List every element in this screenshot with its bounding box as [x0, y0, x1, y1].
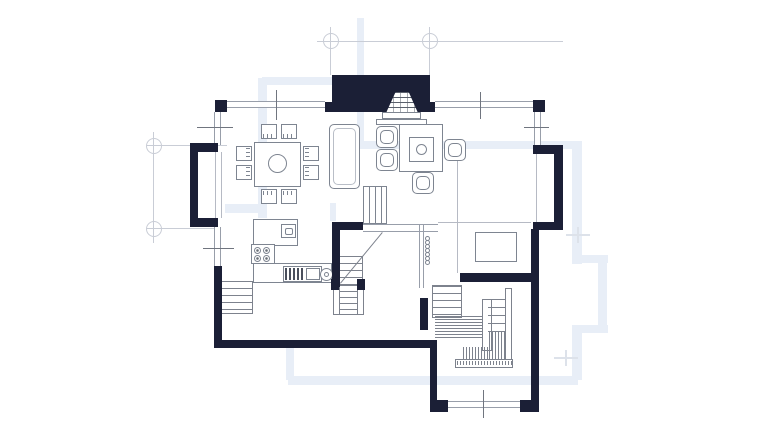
dining-chair [236, 165, 252, 180]
wall [190, 218, 218, 227]
grid-marker-icon [323, 33, 339, 49]
dining-chair [281, 124, 297, 139]
window-tick [483, 390, 484, 418]
wall [554, 145, 563, 230]
wall [190, 143, 198, 227]
armchair [444, 139, 466, 161]
survey-cross-icon [577, 227, 579, 243]
oven-door [306, 268, 320, 280]
upper-floor-outline [225, 204, 264, 213]
staircase-flight [488, 299, 505, 332]
stair-guard-line [419, 225, 420, 288]
window-tick [197, 127, 233, 128]
hall-partition-line [363, 224, 438, 225]
kitchen-appliance [281, 224, 296, 238]
grid-marker-icon [422, 33, 438, 49]
burner-icon [254, 247, 261, 254]
oven-grill [285, 268, 304, 280]
coffee-table-bowl [416, 144, 427, 155]
armchair [376, 149, 398, 171]
partition-line [457, 146, 458, 273]
burner-icon [263, 247, 270, 254]
interior-wall [460, 273, 531, 282]
hall-floor-line [438, 222, 531, 223]
chimney-duct-block [363, 186, 387, 224]
upper-floor-outline [572, 141, 582, 264]
baluster-icon [425, 260, 430, 265]
dining-chair [303, 146, 319, 161]
fireplace-hearth [382, 112, 421, 119]
window [435, 101, 533, 108]
fireplace-hearth [376, 119, 427, 125]
window-tick [524, 127, 549, 128]
hall-partition-line [363, 231, 438, 232]
grid-line [317, 41, 563, 42]
window [448, 401, 520, 408]
interior-wall [332, 222, 340, 287]
wall [531, 229, 539, 412]
window-tick [276, 90, 277, 120]
staircase-dense-treads [435, 316, 482, 338]
survey-cross-icon [565, 350, 567, 366]
dining-chair [236, 146, 252, 161]
stair-stringer [505, 288, 512, 366]
armchair [412, 172, 434, 194]
window-tick [480, 92, 481, 119]
stair-landing [455, 359, 513, 368]
window [214, 112, 221, 145]
upper-floor-outline [286, 348, 294, 380]
interior-wall [332, 222, 363, 230]
armchair [376, 126, 398, 148]
wall-corner [215, 100, 227, 112]
sofa [329, 124, 360, 189]
stair-guard-line [423, 225, 424, 288]
upper-floor-outline [330, 203, 336, 221]
wall-stub [357, 279, 365, 290]
upper-floor-outline [572, 325, 582, 380]
wall [214, 340, 437, 348]
floor-plan-canvas [0, 0, 770, 434]
wall-pier [424, 102, 435, 112]
wall [430, 340, 437, 402]
wall-corner [520, 400, 539, 412]
bay-opening-line [215, 152, 216, 218]
dining-chair [303, 165, 319, 180]
dining-chair [261, 189, 277, 204]
sink-drain [324, 272, 329, 277]
staircase-flight [432, 285, 462, 318]
dining-table-centerpiece [268, 154, 287, 173]
dining-chair [281, 189, 297, 204]
window [534, 112, 541, 145]
wall [190, 143, 218, 152]
bay-opening-line [221, 152, 222, 218]
wall-face-line [536, 154, 537, 222]
wall-corner [533, 100, 545, 112]
cabinet [475, 232, 517, 262]
burner-icon [263, 255, 270, 262]
window-tick [203, 248, 234, 249]
stair-guard-wall [420, 298, 428, 330]
burner-icon [254, 255, 261, 262]
staircase-flight [340, 285, 357, 315]
dining-chair [261, 124, 277, 139]
fireplace [332, 75, 430, 112]
wall-stub [331, 279, 339, 290]
grid-marker-icon [146, 138, 162, 154]
window [214, 227, 221, 266]
staircase-steps [220, 281, 253, 314]
grid-marker-icon [146, 221, 162, 237]
wall-corner [430, 400, 448, 412]
upper-floor-outline [598, 255, 607, 333]
wall [214, 266, 222, 348]
wall-pier [325, 102, 337, 112]
